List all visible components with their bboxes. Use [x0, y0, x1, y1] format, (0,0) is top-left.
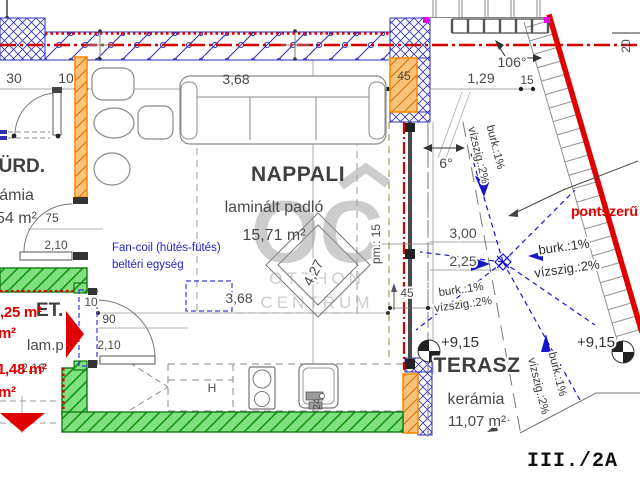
dim-24: 24: [312, 398, 323, 410]
pillar-left: [75, 57, 87, 197]
red-area-fragment-1: m²: [0, 325, 16, 342]
note-fridge: H: [208, 381, 217, 395]
dim-30: 30: [6, 70, 22, 86]
dim-368-bottom: 3,68: [225, 290, 252, 306]
armchairs-and-table: [92, 68, 173, 185]
room-nappali-floor: laminált padló: [225, 199, 324, 216]
furdo-door-top: [0, 87, 62, 140]
pillar-top-right: [390, 58, 417, 112]
cooktop: [249, 367, 275, 409]
dim-129: 1,29: [467, 70, 494, 86]
dim-45-glass: 45: [400, 286, 414, 300]
level-text-right: +9,15: [577, 334, 615, 351]
dim-225: 2,25: [449, 253, 476, 269]
glazed-wall: [380, 122, 440, 374]
dim-75: 75: [45, 211, 59, 225]
leader-arrow-icon: [508, 209, 518, 217]
staircase: [524, 14, 640, 339]
survey-point-icon: [423, 17, 429, 23]
dim-angle-6: 6°: [439, 155, 452, 171]
railing: [423, 0, 550, 33]
note-drain-type: pontszerű: [571, 203, 638, 219]
room-furdo-name: FÜRD.: [0, 156, 45, 177]
dim-15: 15: [520, 73, 534, 87]
note-fancoil-line2: beltéri egység: [112, 259, 184, 271]
floor-plan-sheet: OC OTTHON CENTRUM 30 10 3,68 45 1,29 15 …: [0, 0, 640, 480]
dim-10: 10: [58, 70, 74, 86]
room-terasz-area: 11,07 m²: [448, 413, 506, 430]
arrow-right-icon: [456, 144, 465, 152]
survey-point-icon: [544, 17, 550, 23]
dim-300: 3,00: [449, 225, 476, 241]
dim-20: 20: [619, 39, 633, 53]
dim-210-furdo: 2,10: [44, 238, 68, 252]
room-nappali-name: NAPPALI: [251, 163, 345, 186]
room-terasz-name: TERASZ: [434, 354, 521, 377]
level-text-left: +9,15: [441, 334, 479, 351]
dim-210-et: 2,10: [97, 338, 121, 352]
dim-45-pillar: 45: [397, 69, 411, 83]
slope-viz-b: vízszig.:2%: [533, 256, 601, 280]
watermark-name-bottom: CENTRUM: [261, 293, 374, 312]
dim-angle-106: 106°: [498, 54, 527, 70]
slope-viz-d: vízszig.:2%: [525, 357, 551, 416]
sheet-label: III./2A: [527, 450, 618, 473]
room-terasz-floor: kerámia: [448, 391, 505, 408]
floor-plan-drawing: OC OTTHON CENTRUM 30 10 3,68 45 1,29 15 …: [0, 0, 640, 480]
red-area-2: 1,48 m²: [0, 361, 47, 378]
room-furdo-area: 54 m²: [0, 210, 38, 227]
dim-368-top: 3,68: [222, 71, 249, 87]
dim-10-et: 10: [84, 295, 98, 309]
red-area-1: 1,25 m²: [0, 304, 42, 321]
pillar-bottom-right: [403, 374, 418, 433]
slope-arrow-icon: [541, 334, 551, 352]
stair-red-stringer: [549, 14, 640, 332]
slope-burk-b: burk.:1%: [537, 235, 590, 257]
sofa: [180, 76, 386, 144]
room-furdo-floor: kerámia: [0, 187, 34, 204]
entry-triangle-down-icon: [0, 413, 45, 432]
top-insulated-wall: [0, 18, 430, 60]
dim-parapet: pm.: 15: [369, 224, 383, 264]
room-et-floor: lam.p: [27, 337, 64, 354]
entry-triangle-right-icon: [66, 311, 84, 358]
drain-point: [495, 254, 511, 270]
note-fancoil-line1: Fan-coil (hütés-fütés): [112, 242, 221, 254]
room-nappali-area: 15,71 m²: [242, 227, 306, 244]
up-arrow-icon: [391, 283, 397, 292]
dim-90: 90: [102, 312, 116, 326]
red-area-fragment-2: m²: [0, 384, 16, 401]
level-marker-right: [612, 341, 634, 363]
